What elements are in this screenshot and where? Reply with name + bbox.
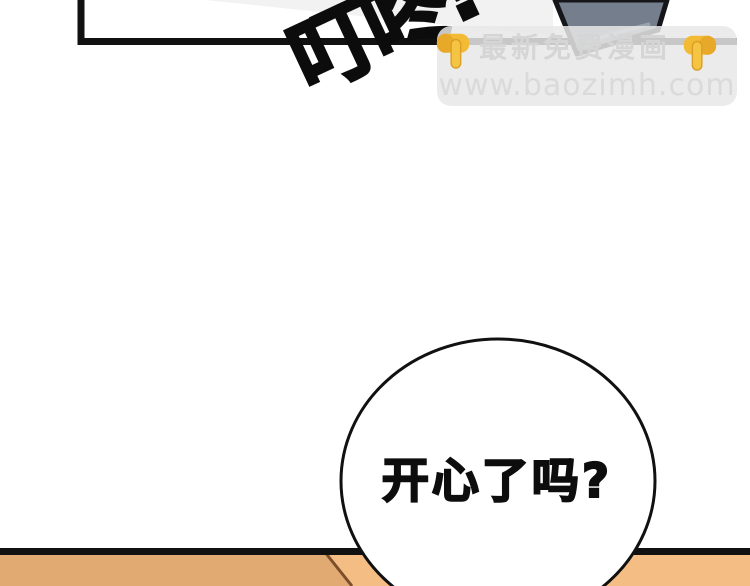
hand-pointing-down-icon — [680, 30, 718, 72]
speech-bubble-text: 开心了吗? — [347, 453, 647, 511]
floor-dark-region — [0, 551, 351, 586]
comic-panel: 叮咚! 开心了吗? 最新免费漫画 www.baozimh.com — [0, 0, 750, 586]
hand-pointing-down-icon — [435, 28, 473, 70]
watermark-title: 最新免费漫画 — [473, 31, 677, 65]
site-watermark: 最新免费漫画 www.baozimh.com — [437, 26, 737, 106]
watermark-url: www.baozimh.com — [437, 68, 737, 104]
